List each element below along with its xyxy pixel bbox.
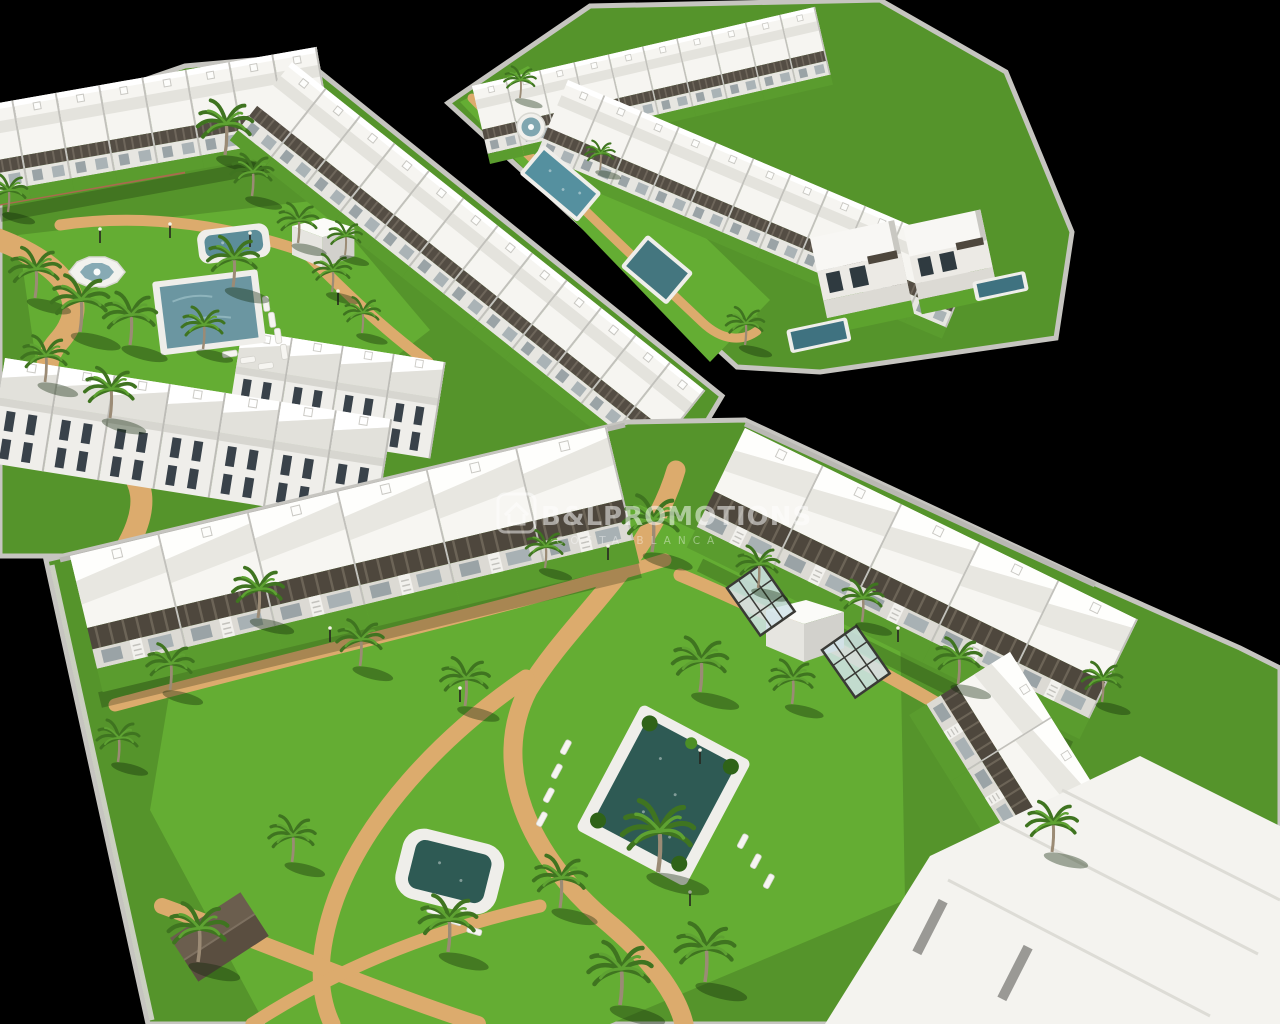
round-fountain bbox=[517, 113, 545, 141]
main-swimming-pool bbox=[152, 269, 266, 355]
aerial-render: B&LPROMOTIONS COSTA BLANCA bbox=[0, 0, 1280, 1024]
brand-tagline: COSTA BLANCA bbox=[556, 535, 721, 547]
brand-text: B&LPROMOTIONS bbox=[541, 502, 812, 532]
render-canvas: B&LPROMOTIONS COSTA BLANCA bbox=[0, 0, 1280, 1024]
